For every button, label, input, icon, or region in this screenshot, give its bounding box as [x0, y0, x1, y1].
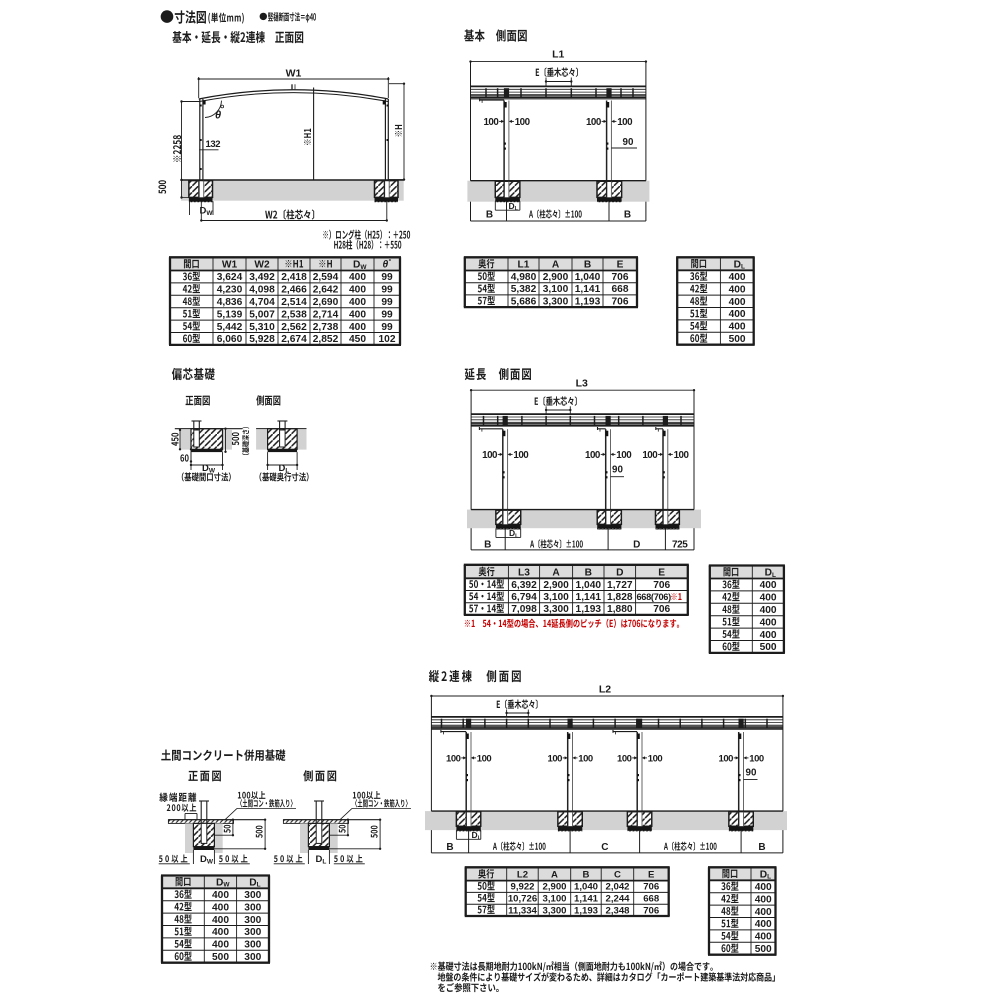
svg-text:11,334: 11,334: [508, 905, 537, 916]
svg-text:5,382: 5,382: [511, 284, 537, 295]
svg-text:100: 100: [749, 754, 764, 765]
svg-text:400: 400: [755, 907, 772, 918]
svg-text:3,492: 3,492: [249, 272, 275, 283]
svg-text:668: 668: [643, 894, 660, 905]
svg-text:θ: θ: [215, 110, 221, 122]
svg-text:3,100: 3,100: [542, 894, 566, 905]
svg-text:400: 400: [729, 309, 746, 320]
svg-text:400: 400: [755, 932, 772, 943]
svg-text:100: 100: [674, 450, 690, 461]
svg-text:132: 132: [206, 139, 221, 150]
svg-text:100: 100: [446, 754, 461, 765]
svg-text:2,852: 2,852: [313, 334, 339, 345]
svg-text:400: 400: [349, 285, 366, 296]
svg-text:1,141: 1,141: [575, 284, 601, 295]
svg-text:102: 102: [379, 334, 396, 345]
svg-text:2,418: 2,418: [281, 272, 307, 283]
svg-text:6,392: 6,392: [511, 580, 537, 591]
svg-text:300: 300: [244, 915, 261, 926]
svg-text:5,928: 5,928: [249, 334, 275, 345]
svg-text:D: D: [633, 540, 640, 551]
svg-text:100: 100: [642, 450, 658, 461]
svg-text:400: 400: [755, 894, 772, 905]
svg-text:400: 400: [349, 309, 366, 320]
svg-text:100: 100: [719, 754, 734, 765]
svg-text:300: 300: [244, 927, 261, 938]
svg-text:4,980: 4,980: [511, 272, 537, 283]
svg-text:90: 90: [746, 768, 757, 779]
svg-text:400: 400: [729, 272, 746, 283]
svg-text:1,040: 1,040: [576, 580, 602, 591]
svg-text:2,738: 2,738: [313, 322, 339, 333]
svg-text:B: B: [583, 870, 590, 881]
svg-text:4,836: 4,836: [217, 297, 243, 308]
svg-text:400: 400: [729, 322, 746, 333]
svg-text:B: B: [446, 842, 453, 853]
svg-text:99: 99: [381, 309, 393, 320]
svg-text:2,900: 2,900: [543, 272, 569, 283]
svg-text:100: 100: [585, 450, 601, 461]
svg-text:706: 706: [612, 272, 629, 283]
svg-text:100: 100: [515, 117, 531, 128]
svg-text:100: 100: [578, 754, 593, 765]
svg-text:99: 99: [381, 285, 393, 296]
svg-text:3,624: 3,624: [217, 272, 243, 283]
svg-text:500: 500: [760, 642, 777, 653]
svg-text:1,193: 1,193: [576, 604, 602, 615]
svg-text:400: 400: [729, 297, 746, 308]
svg-text:2,562: 2,562: [281, 322, 307, 333]
svg-text:400: 400: [760, 605, 777, 616]
svg-text:706: 706: [653, 580, 670, 591]
svg-text:300: 300: [244, 890, 261, 901]
svg-text:9,922: 9,922: [510, 882, 534, 893]
svg-text:100: 100: [617, 117, 633, 128]
svg-text:725: 725: [672, 540, 688, 551]
svg-text:E: E: [658, 567, 665, 578]
svg-text:L2: L2: [599, 684, 611, 696]
svg-text:500: 500: [729, 334, 746, 345]
svg-text:3,300: 3,300: [542, 905, 566, 916]
svg-text:500: 500: [755, 944, 772, 955]
svg-text:2,244: 2,244: [605, 894, 630, 905]
svg-text:1,828: 1,828: [607, 592, 633, 603]
svg-text:B: B: [484, 540, 491, 551]
svg-text:B: B: [624, 210, 631, 221]
svg-text:1,193: 1,193: [575, 296, 601, 307]
svg-text:400: 400: [755, 882, 772, 893]
svg-text:400: 400: [760, 630, 777, 641]
svg-text:C: C: [614, 870, 621, 881]
svg-text:2,690: 2,690: [313, 297, 339, 308]
svg-text:1,880: 1,880: [607, 604, 633, 615]
svg-text:L2: L2: [517, 870, 528, 881]
svg-text:3,100: 3,100: [543, 592, 569, 603]
svg-text:400: 400: [729, 284, 746, 295]
svg-text:2,348: 2,348: [605, 905, 630, 916]
svg-text:1,141: 1,141: [574, 894, 599, 905]
svg-text:5,442: 5,442: [217, 322, 243, 333]
svg-text:4,230: 4,230: [217, 285, 243, 296]
svg-text:3,300: 3,300: [543, 296, 569, 307]
svg-text:5,686: 5,686: [511, 296, 537, 307]
svg-text:L3: L3: [576, 378, 588, 390]
svg-text:10,726: 10,726: [508, 894, 537, 905]
svg-text:B: B: [585, 567, 592, 578]
svg-text:300: 300: [244, 902, 261, 913]
svg-text:L3: L3: [518, 567, 530, 578]
svg-text:400: 400: [212, 940, 229, 951]
svg-text:706: 706: [643, 905, 659, 916]
svg-text:1,193: 1,193: [574, 905, 598, 916]
svg-text:7,098: 7,098: [511, 604, 537, 615]
svg-text:100: 100: [482, 450, 498, 461]
svg-text:400: 400: [760, 580, 777, 591]
svg-text:400: 400: [212, 902, 229, 913]
svg-text:400: 400: [212, 915, 229, 926]
svg-text:400: 400: [755, 919, 772, 930]
svg-text:100: 100: [483, 117, 499, 128]
svg-text:2,042: 2,042: [605, 882, 629, 893]
svg-text:2,900: 2,900: [542, 882, 566, 893]
svg-text:5,310: 5,310: [249, 322, 275, 333]
svg-text:A: A: [551, 870, 558, 881]
svg-text:4,098: 4,098: [249, 285, 275, 296]
svg-text:100: 100: [477, 754, 492, 765]
svg-text:L1: L1: [552, 49, 564, 61]
svg-text:99: 99: [381, 322, 393, 333]
svg-text:90: 90: [623, 137, 634, 148]
svg-text:6,794: 6,794: [511, 592, 537, 603]
svg-text:400: 400: [212, 927, 229, 938]
svg-text:1,141: 1,141: [576, 592, 602, 603]
svg-text:400: 400: [760, 593, 777, 604]
svg-text:100: 100: [616, 450, 632, 461]
svg-text:90: 90: [612, 465, 623, 476]
svg-text:100: 100: [648, 754, 663, 765]
svg-text:100: 100: [548, 754, 563, 765]
svg-text:706: 706: [643, 882, 659, 893]
svg-text:1,727: 1,727: [607, 580, 633, 591]
svg-text:5,007: 5,007: [249, 309, 275, 320]
svg-text:100: 100: [617, 754, 632, 765]
svg-text:450: 450: [349, 334, 366, 345]
svg-text:400: 400: [760, 617, 777, 628]
svg-text:400: 400: [349, 297, 366, 308]
svg-text:E: E: [648, 870, 655, 881]
svg-text:706: 706: [653, 604, 670, 615]
svg-text:A: A: [552, 260, 560, 271]
svg-text:2,538: 2,538: [281, 309, 307, 320]
svg-text:706: 706: [612, 296, 629, 307]
svg-text:668(706): 668(706): [637, 592, 672, 602]
svg-text:2,514: 2,514: [281, 297, 307, 308]
svg-text:W1: W1: [286, 68, 302, 80]
svg-text:L1: L1: [518, 260, 530, 271]
svg-text:300: 300: [244, 940, 261, 951]
svg-text:3,300: 3,300: [543, 604, 569, 615]
svg-text:400: 400: [349, 322, 366, 333]
svg-text:W2: W2: [254, 260, 270, 271]
svg-text:4,704: 4,704: [249, 297, 275, 308]
svg-text:1,040: 1,040: [575, 272, 601, 283]
svg-text:2,714: 2,714: [313, 309, 339, 320]
svg-text:300: 300: [244, 952, 261, 963]
svg-text:2,900: 2,900: [543, 580, 569, 591]
svg-text:W1: W1: [222, 260, 238, 271]
svg-text:5,139: 5,139: [217, 309, 243, 320]
svg-text:B: B: [584, 260, 591, 271]
svg-text:2,674: 2,674: [281, 334, 307, 345]
svg-text:2,466: 2,466: [281, 285, 307, 296]
svg-text:400: 400: [212, 890, 229, 901]
svg-text:2,594: 2,594: [313, 272, 339, 283]
svg-text:B: B: [486, 210, 493, 221]
svg-text:668: 668: [612, 284, 629, 295]
svg-text:B: B: [758, 842, 765, 853]
svg-text:100: 100: [586, 117, 602, 128]
svg-text:6,060: 6,060: [217, 334, 243, 345]
svg-text:500: 500: [212, 952, 229, 963]
svg-text:A: A: [552, 567, 560, 578]
svg-text:99: 99: [381, 272, 393, 283]
svg-text:99: 99: [381, 297, 393, 308]
svg-text:E: E: [617, 260, 624, 271]
svg-text:1,040: 1,040: [574, 882, 598, 893]
svg-text:400: 400: [349, 272, 366, 283]
svg-text:3,100: 3,100: [543, 284, 569, 295]
svg-text:100: 100: [513, 450, 529, 461]
svg-text:2,642: 2,642: [313, 285, 339, 296]
svg-text:C: C: [601, 842, 608, 853]
svg-text:D: D: [616, 567, 623, 578]
